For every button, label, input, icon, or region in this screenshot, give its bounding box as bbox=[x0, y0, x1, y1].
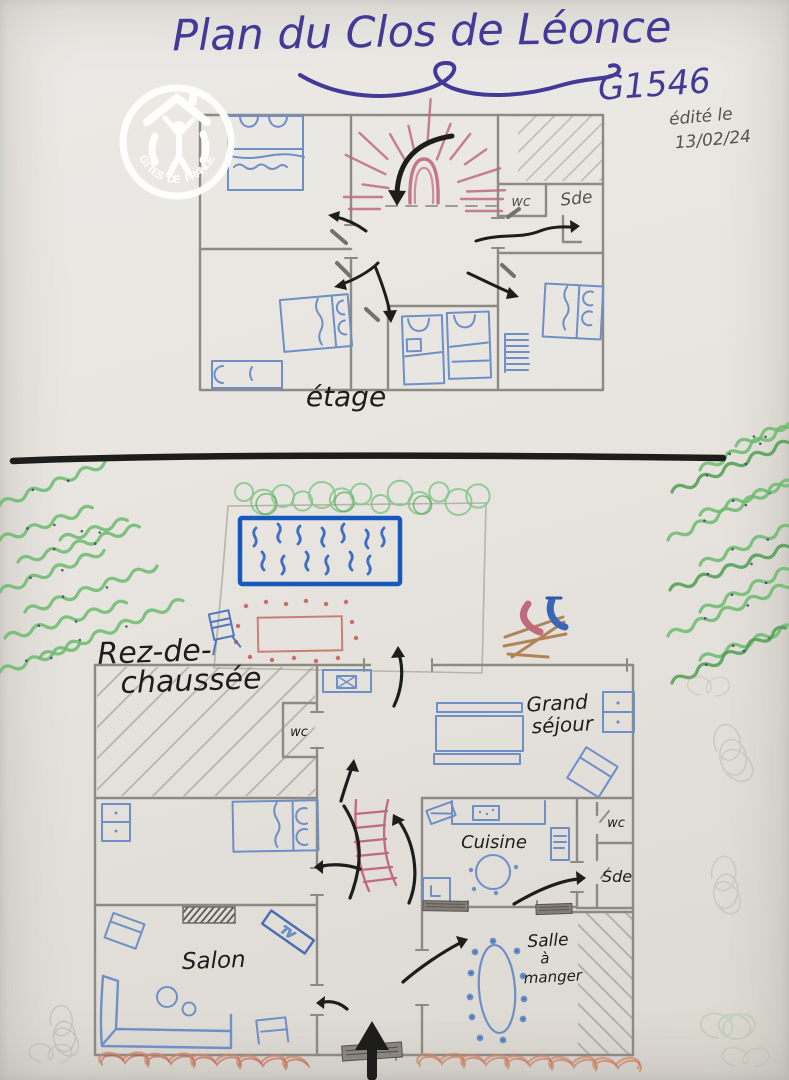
hatched-area bbox=[518, 115, 602, 181]
terrace-hatch bbox=[578, 913, 632, 1054]
staircase bbox=[354, 800, 396, 891]
tv-stand: TV bbox=[262, 911, 314, 954]
svg-text:séjour: séjour bbox=[531, 711, 595, 738]
logo-figure-head bbox=[172, 121, 186, 135]
pink-lounger bbox=[523, 604, 540, 632]
ground-floor-plan: TV bbox=[95, 631, 641, 1076]
garden-area bbox=[205, 481, 566, 673]
pool-water-squiggles bbox=[254, 524, 385, 574]
dresser-bottom-left bbox=[212, 361, 282, 388]
dining-label: Salle à manger bbox=[521, 929, 583, 987]
lounge-chair-2 bbox=[253, 1014, 291, 1049]
wall-cabinet bbox=[603, 692, 634, 732]
bed-bottom-right bbox=[543, 284, 604, 340]
svg-text:13/02/24: 13/02/24 bbox=[674, 127, 752, 154]
kitchen-label: Cuisine bbox=[461, 832, 527, 853]
bush-row bbox=[235, 481, 490, 515]
side-table bbox=[183, 1003, 196, 1016]
upper-floor-label: étage bbox=[306, 380, 386, 413]
garden-table bbox=[234, 599, 358, 663]
sde-label: Sde bbox=[602, 867, 632, 886]
swimming-pool bbox=[240, 518, 400, 584]
ground-floor-dresser bbox=[102, 804, 130, 841]
section-divider-line bbox=[13, 456, 723, 461]
header: Plan du Clos de Léonce G1546 édité le 13… bbox=[172, 3, 752, 154]
svg-text:manger: manger bbox=[523, 966, 583, 987]
armchair bbox=[567, 747, 617, 797]
gites-de-france-logo: GÎTES DE FRANCE bbox=[123, 88, 231, 196]
edit-date: édité le 13/02/24 bbox=[668, 103, 752, 154]
upper-floor-wc-label: wc bbox=[511, 194, 530, 210]
blue-lounger bbox=[550, 600, 565, 627]
lounge-label: Salon bbox=[181, 947, 246, 975]
svg-text:édité le: édité le bbox=[668, 104, 733, 129]
living-room-label: Grand séjour bbox=[526, 689, 595, 738]
fireplace bbox=[183, 907, 235, 923]
hall-wc-label: wc bbox=[290, 725, 308, 740]
garden-chair-dots bbox=[234, 599, 358, 663]
twin-beds-center bbox=[402, 311, 491, 384]
entrance-arrow bbox=[355, 1021, 389, 1076]
sideboard bbox=[434, 703, 523, 764]
svg-text:E: E bbox=[173, 174, 180, 186]
double-bed-top-left bbox=[228, 116, 304, 190]
wc-label: wc bbox=[607, 816, 625, 831]
upper-floor-plan: wc Sde étage bbox=[200, 99, 603, 413]
title-flourish bbox=[300, 63, 619, 96]
lounge-chair-1 bbox=[105, 913, 145, 949]
svg-text:chaussée: chaussée bbox=[120, 661, 262, 701]
hall-console bbox=[323, 670, 371, 692]
dining-chair-dots bbox=[468, 939, 527, 1043]
photographed-floor-plan-sheet: Plan du Clos de Léonce G1546 édité le 13… bbox=[0, 0, 789, 1080]
sun-loungers bbox=[504, 598, 566, 657]
svg-text:à: à bbox=[540, 949, 550, 967]
page-title: Plan du Clos de Léonce bbox=[172, 3, 672, 62]
upper-floor-sde-label: Sde bbox=[559, 187, 593, 210]
bed-bottom-left bbox=[280, 294, 352, 352]
gite-code: G1546 bbox=[597, 61, 712, 109]
floor-plan-drawing: Plan du Clos de Léonce G1546 édité le 13… bbox=[0, 0, 789, 1080]
dining-table bbox=[468, 939, 527, 1043]
coffee-table bbox=[157, 987, 177, 1007]
radiator bbox=[505, 334, 529, 372]
ground-floor-bed bbox=[233, 800, 319, 851]
